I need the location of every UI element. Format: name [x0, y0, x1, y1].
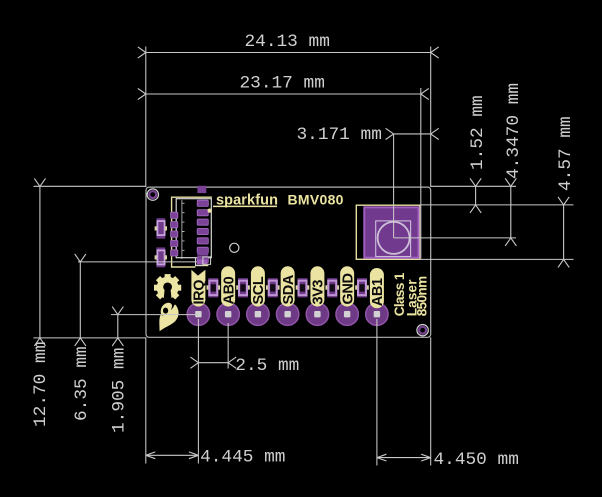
- svg-text:3V3: 3V3: [311, 280, 327, 305]
- svg-text:23.17 mm: 23.17 mm: [240, 74, 325, 94]
- svg-text:4.450 mm: 4.450 mm: [434, 450, 519, 470]
- svg-text:BMV080: BMV080: [288, 191, 344, 207]
- svg-text:6.35 mm: 6.35 mm: [72, 346, 92, 421]
- svg-text:4.3470 mm: 4.3470 mm: [504, 83, 524, 179]
- svg-text:1.905 mm: 1.905 mm: [110, 348, 130, 433]
- svg-text:AB1: AB1: [370, 278, 386, 306]
- svg-text:AB0: AB0: [221, 276, 237, 304]
- svg-text:12.70 mm: 12.70 mm: [31, 342, 51, 427]
- svg-text:2.5 mm: 2.5 mm: [235, 356, 299, 376]
- svg-text:4.57 mm: 4.57 mm: [556, 116, 576, 191]
- svg-text:3.171 mm: 3.171 mm: [297, 125, 382, 145]
- svg-text:4.445 mm: 4.445 mm: [200, 448, 285, 468]
- svg-text:1.52 mm: 1.52 mm: [468, 95, 488, 170]
- svg-text:GND: GND: [340, 273, 356, 304]
- svg-text:IRQ: IRQ: [192, 280, 208, 305]
- svg-text:850nm: 850nm: [415, 276, 430, 316]
- svg-text:SDA: SDA: [281, 274, 297, 304]
- svg-text:SCL: SCL: [251, 276, 267, 304]
- svg-text:24.13 mm: 24.13 mm: [245, 32, 330, 52]
